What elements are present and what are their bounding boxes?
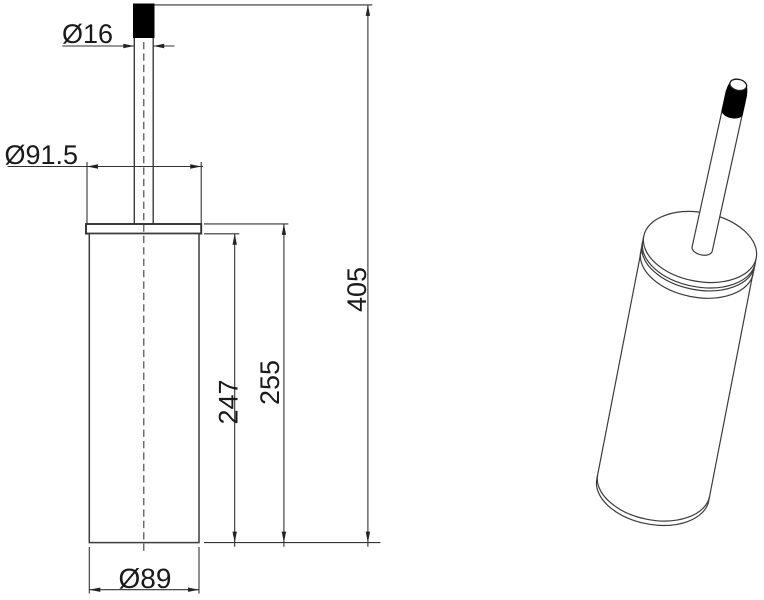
svg-text:405: 405	[342, 267, 372, 312]
svg-text:Ø91.5: Ø91.5	[5, 140, 79, 170]
svg-text:255: 255	[255, 360, 285, 405]
svg-text:Ø89: Ø89	[119, 563, 172, 594]
svg-text:Ø16: Ø16	[62, 19, 113, 49]
svg-text:247: 247	[214, 379, 244, 424]
